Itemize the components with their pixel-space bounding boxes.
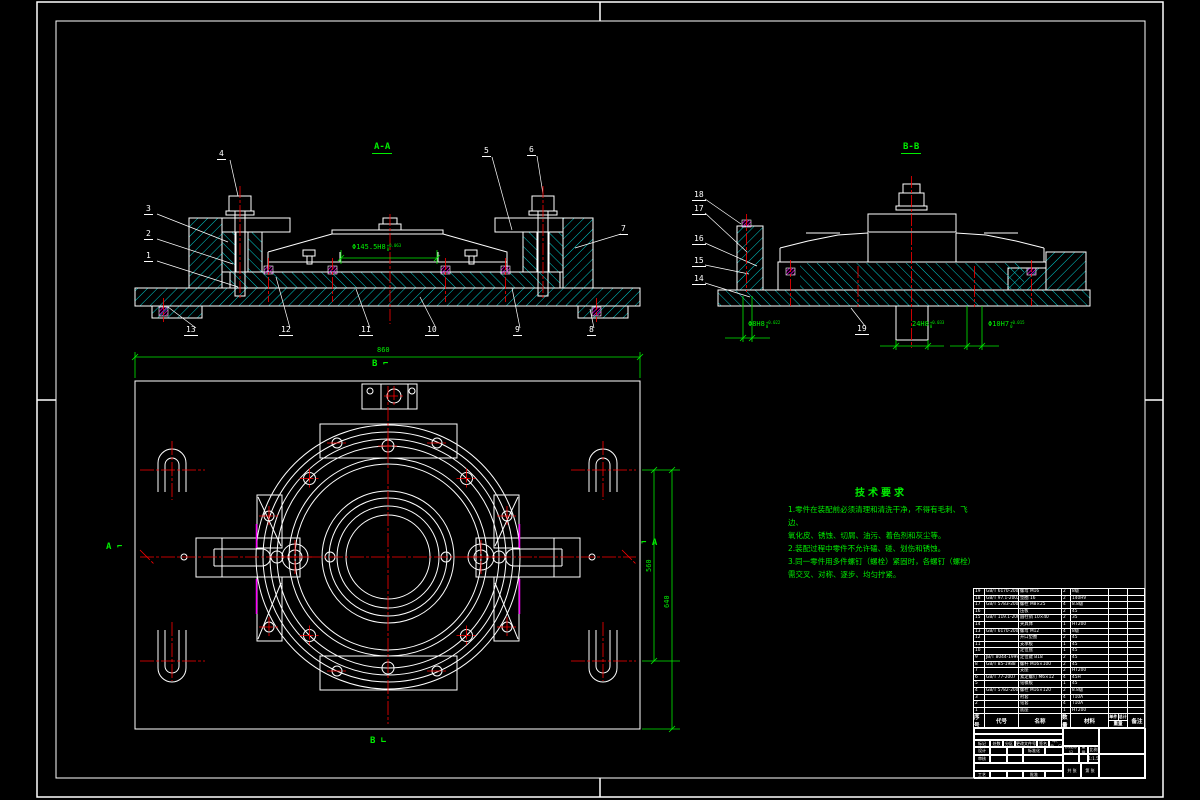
bom-cell-note (1128, 662, 1146, 668)
bom-cell-qty: 2 (1062, 589, 1071, 595)
bom-cell-qty: 2 (1062, 609, 1071, 615)
bom-cell-qty: 1 (1062, 642, 1071, 648)
bom-cell-material: 45H (1071, 675, 1109, 681)
bom-cell-name: 压板 (1019, 609, 1062, 615)
bom-cell-code (985, 668, 1019, 674)
bom-cell-note (1128, 596, 1146, 602)
bom-rows: 19 GB/T 6170-2000 螺母 M16 2 8级 18 GB/T 97… (974, 589, 1144, 714)
bom-cell-name: 底座 (1019, 708, 1062, 714)
bom-cell-code (985, 681, 1019, 687)
tb-scale-value: 1:1.5 (1088, 754, 1099, 763)
bom-cell-code: GB/T 77-2007 (985, 675, 1019, 681)
dim-tolerance: +0.0220 (766, 321, 780, 329)
balloon-10: 10 (425, 326, 439, 336)
bom-cell-name: 螺栓 M16×120 (1019, 688, 1062, 694)
dim-tolerance: +0.0630 (387, 244, 401, 252)
bom-cell-code: GB/T 5783-2000 (985, 602, 1019, 608)
bom-cell-name: 紧定螺钉 M6×12 (1019, 675, 1062, 681)
dim-bore-aa: Φ145.5H8+0.0630 (352, 244, 401, 252)
bom-cell-code: GB/T 6170-2000 (985, 629, 1019, 635)
balloon-17: 17 (692, 205, 706, 215)
bom-table: 19 GB/T 6170-2000 螺母 M16 2 8级 18 GB/T 97… (973, 588, 1145, 728)
bom-cell-qty: 1 (1062, 681, 1071, 687)
bom-row: 3 衬套 4 T10A (974, 695, 1144, 702)
bom-cell-weight (1109, 629, 1128, 635)
tb-sign: 签名 (1037, 740, 1049, 747)
dim-bb-3: Φ10H7+0.0150 (988, 321, 1025, 329)
bom-row: 13 GB/T 6170-2000 螺母 M12 4 8级 (974, 629, 1144, 636)
dim-text: Φ145.5H8 (352, 244, 386, 251)
tb-design: 设计 (974, 747, 990, 755)
dim-plan-width: 860 (377, 347, 390, 354)
bom-cell-no: 18 (974, 596, 985, 602)
bom-cell-note (1128, 589, 1146, 595)
bom-cell-code: GB/T 97.1-2002 (985, 596, 1019, 602)
bom-cell-name: 螺栓 M8×25 (1019, 602, 1062, 608)
bom-cell-note (1128, 642, 1146, 648)
bom-row: 5 钻模板 1 45 (974, 681, 1144, 688)
bom-cell-code (985, 701, 1019, 707)
bom-header: 序号 代号 名称 数量 材料 单件总计 重量 备注 (974, 714, 1144, 728)
bom-cell-qty: 1 (1062, 708, 1071, 714)
bom-cell-qty: 2 (1062, 662, 1071, 668)
balloon-16: 16 (692, 235, 706, 245)
bom-cell-material: 45 (1071, 662, 1109, 668)
bom-cell-note (1128, 609, 1146, 615)
bom-cell-qty: 2 (1062, 655, 1071, 661)
bom-cell-code: GB/T 6170-2000 (985, 589, 1019, 595)
note-line: 2.装配过程中零件不允许磕、碰、划伤和锈蚀。 (788, 542, 974, 555)
bom-cell-no: 5 (974, 681, 985, 687)
bom-row: 10 定位盘 1 45 (974, 648, 1144, 655)
bom-cell-name: 螺母 M16 (1019, 589, 1062, 595)
bom-row: 2 钻套 4 T10A (974, 701, 1144, 708)
bom-cell-code (985, 609, 1019, 615)
bom-cell-no: 10 (974, 648, 985, 654)
bom-cell-material: 140HV (1071, 596, 1109, 602)
balloon-19: 19 (855, 325, 869, 335)
bom-cell-name: 螺杆 M16×100 (1019, 662, 1062, 668)
bom-cell-weight (1109, 675, 1128, 681)
bom-row: 1 底座 1 HT200 (974, 708, 1144, 715)
tb-drawing-number-cell (1099, 728, 1146, 754)
tb-doc: 更改文件号 (1015, 740, 1037, 747)
bom-cell-no: 13 (974, 629, 985, 635)
bom-row: 16 压板 2 45 (974, 609, 1144, 616)
bom-cell-name: 螺母 M12 (1019, 629, 1062, 635)
bom-cell-code: JB/T 8044-1999 (985, 655, 1019, 661)
balloon-4: 4 (217, 150, 226, 160)
bom-cell-note (1128, 688, 1146, 694)
bom-header-note: 备注 (1128, 714, 1146, 727)
bom-cell-material: 35 (1071, 615, 1109, 621)
bom-cell-name: 开口垫圈 (1019, 635, 1062, 641)
bom-cell-no: 1 (974, 708, 985, 714)
bom-row: 8 GB/T 85-1988 螺杆 M16×100 2 45 (974, 662, 1144, 669)
bom-cell-no: 7 (974, 668, 985, 674)
bom-cell-material: T10A (1071, 701, 1109, 707)
dim-bb-1: Φ8H8+0.0220 (748, 321, 780, 329)
bom-cell-code (985, 635, 1019, 641)
bom-cell-no: 9 (974, 655, 985, 661)
bom-cell-note (1128, 708, 1146, 714)
bom-cell-name: 支座 (1019, 668, 1062, 674)
bom-cell-material: 45 (1071, 648, 1109, 654)
tb-sheets: 共 张 (1063, 763, 1081, 779)
bom-cell-code: GB/T 85-1988 (985, 662, 1019, 668)
bom-row: 15 GB/T 119.1-2000 圆柱销 10×40 2 35 (974, 615, 1144, 622)
bom-cell-no: 15 (974, 615, 985, 621)
bom-cell-name: 衬套 (1019, 695, 1062, 701)
bom-cell-no: 14 (974, 622, 985, 628)
dim-bb-2: 24H8+0.0330 (912, 321, 944, 329)
bom-cell-code (985, 695, 1019, 701)
bom-cell-material: 45 (1071, 642, 1109, 648)
balloon-15: 15 (692, 257, 706, 267)
bom-cell-note (1128, 602, 1146, 608)
tb-count: 处数 (990, 740, 1003, 747)
bom-cell-qty: 4 (1062, 701, 1071, 707)
bom-cell-material: 8.8级 (1071, 602, 1109, 608)
bom-cell-weight (1109, 681, 1128, 687)
bom-row: 18 GB/T 97.1-2002 垫圈 16 2 140HV (974, 596, 1144, 603)
note-line: 氧化皮、锈蚀、切屑、油污、着色剂和灰尘等。 (788, 529, 974, 542)
section-aa-view (135, 156, 640, 328)
tb-stage: 阶段标记 (1063, 746, 1079, 754)
bom-cell-material: HT200 (1071, 668, 1109, 674)
bom-cell-weight (1109, 655, 1128, 661)
bom-cell-code (985, 708, 1019, 714)
balloon-2: 2 (144, 230, 153, 240)
balloon-8: 8 (587, 326, 596, 336)
bom-cell-note (1128, 668, 1146, 674)
plan-view (135, 381, 640, 729)
balloon-9: 9 (513, 326, 522, 336)
bom-header-code: 代号 (985, 714, 1019, 727)
bom-cell-weight (1109, 609, 1128, 615)
dim-plan-height-inner: 560 (646, 559, 653, 572)
bom-cell-material: 45 (1071, 655, 1109, 661)
bom-cell-note (1128, 622, 1146, 628)
bom-cell-name: 钻模板 (1019, 681, 1062, 687)
balloon-1: 1 (144, 252, 153, 262)
bom-row: 14 夹具体 1 HT200 (974, 622, 1144, 629)
bom-cell-qty: 2 (1062, 635, 1071, 641)
bom-cell-qty: 1 (1062, 622, 1071, 628)
bom-cell-material: HT200 (1071, 622, 1109, 628)
title-block: 标记 处数 分区 更改文件号 签名 年、月、日 设计 标准化 审核 工艺 批准 … (973, 727, 1145, 778)
tb-mark: 标记 (974, 740, 990, 747)
bom-cell-note (1128, 648, 1146, 654)
bom-cell-weight (1109, 589, 1128, 595)
bom-cell-qty: 4 (1062, 695, 1071, 701)
bom-cell-qty: 4 (1062, 602, 1071, 608)
bom-cell-no: 11 (974, 642, 985, 648)
bom-cell-name: 定位盘 (1019, 648, 1062, 654)
bom-cell-note (1128, 635, 1146, 641)
bom-cell-weight (1109, 668, 1128, 674)
bom-header-weight: 单件总计 重量 (1109, 714, 1128, 727)
bom-row: 19 GB/T 6170-2000 螺母 M16 2 8级 (974, 589, 1144, 596)
dim-text: 24H8 (912, 321, 929, 328)
bom-cell-no: 19 (974, 589, 985, 595)
bom-cell-name: 夹具体 (1019, 622, 1062, 628)
bom-cell-code: GB/T 5782-2000 (985, 688, 1019, 694)
bom-cell-weight (1109, 596, 1128, 602)
bom-cell-material: T10A (1071, 695, 1109, 701)
note-line: 需交叉、对称、逐步、均匀拧紧。 (788, 568, 974, 581)
bom-cell-weight (1109, 695, 1128, 701)
balloon-3: 3 (144, 205, 153, 215)
bom-cell-weight (1109, 642, 1128, 648)
bom-cell-code: GB/T 119.1-2000 (985, 615, 1019, 621)
bom-cell-name: 垫圈 16 (1019, 596, 1062, 602)
bom-cell-no: 6 (974, 675, 985, 681)
bom-cell-name: 支承板 (1019, 642, 1062, 648)
tb-standard: 标准化 (1023, 747, 1045, 755)
section-bb-label: B-B (901, 143, 921, 154)
bom-cell-material: 8.8级 (1071, 688, 1109, 694)
section-aa-label: A-A (372, 143, 392, 154)
section-bb-view (705, 184, 1090, 340)
bom-row: 11 支承板 1 45 (974, 642, 1144, 649)
bom-cell-qty: 1 (1062, 648, 1071, 654)
balloon-12: 12 (279, 326, 293, 336)
section-marker-b-bottom: B ∟ (370, 737, 386, 746)
technical-requirements-title: 技术要求 (788, 484, 974, 499)
balloon-13: 13 (184, 326, 198, 336)
bom-header-qty: 数量 (1062, 714, 1071, 727)
tb-process: 工艺 (974, 771, 990, 779)
bom-row: 6 GB/T 77-2007 紧定螺钉 M6×12 4 45H (974, 675, 1144, 682)
bom-cell-material: 45 (1071, 635, 1109, 641)
dim-text: Φ8H8 (748, 321, 765, 328)
bom-header-no: 序号 (974, 714, 985, 727)
tb-drawing-name-cell (1099, 754, 1146, 779)
tb-check: 审核 (974, 755, 990, 763)
tb-date: 年、月、日 (1049, 740, 1063, 747)
bom-cell-weight (1109, 662, 1128, 668)
bom-cell-note (1128, 701, 1146, 707)
dim-tolerance: +0.0330 (930, 321, 944, 329)
note-line: 3.同一零件用多件螺钉（螺栓）紧固时，各螺钉（螺栓） (788, 555, 974, 568)
balloon-6: 6 (527, 146, 536, 156)
bom-cell-note (1128, 629, 1146, 635)
tb-zone: 分区 (1003, 740, 1015, 747)
bom-cell-no: 16 (974, 609, 985, 615)
bom-cell-qty: 2 (1062, 615, 1071, 621)
bom-cell-no: 3 (974, 695, 985, 701)
bom-cell-note (1128, 675, 1146, 681)
bom-cell-note (1128, 681, 1146, 687)
balloon-14: 14 (692, 275, 706, 285)
tb-scale: 比例 (1088, 746, 1099, 754)
bom-cell-code (985, 622, 1019, 628)
bom-row: 9 JB/T 8044-1999 定位键 B18 2 45 (974, 655, 1144, 662)
tb-weight: 重量 (1079, 746, 1088, 754)
bom-cell-name: 钻套 (1019, 701, 1062, 707)
balloon-7: 7 (619, 225, 628, 235)
bom-cell-material: 8级 (1071, 629, 1109, 635)
bom-header-material: 材料 (1071, 714, 1109, 727)
bom-row: 4 GB/T 5782-2000 螺栓 M16×120 2 8.8级 (974, 688, 1144, 695)
drawing-canvas: A-A B-B 4 5 6 3 2 1 7 13 12 11 10 9 8 18… (0, 0, 1200, 800)
bom-cell-no: 17 (974, 602, 985, 608)
bom-row: 12 开口垫圈 2 45 (974, 635, 1144, 642)
balloon-11: 11 (359, 326, 373, 336)
bom-cell-qty: 2 (1062, 668, 1071, 674)
balloon-5: 5 (482, 147, 491, 157)
dim-plan-height-outer: 640 (664, 595, 671, 608)
bom-cell-qty: 4 (1062, 675, 1071, 681)
bom-cell-weight (1109, 701, 1128, 707)
bom-cell-weight (1109, 635, 1128, 641)
bom-cell-note (1128, 695, 1146, 701)
bom-cell-no: 12 (974, 635, 985, 641)
bom-cell-note (1128, 655, 1146, 661)
bom-row: 17 GB/T 5783-2000 螺栓 M8×25 4 8.8级 (974, 602, 1144, 609)
bom-cell-note (1128, 615, 1146, 621)
section-marker-b-top: B ⌐ (372, 360, 388, 369)
bom-cell-material: 8级 (1071, 589, 1109, 595)
bom-cell-weight (1109, 648, 1128, 654)
bom-cell-name: 定位键 B18 (1019, 655, 1062, 661)
bom-cell-weight (1109, 688, 1128, 694)
bom-cell-name: 圆柱销 10×40 (1019, 615, 1062, 621)
tb-approve: 批准 (1023, 771, 1045, 779)
technical-requirements: 技术要求 1.零件在装配前必须清理和清洗干净，不得有毛刺、飞边、 氧化皮、锈蚀、… (788, 484, 974, 581)
bom-cell-qty: 4 (1062, 629, 1071, 635)
bom-cell-no: 2 (974, 701, 985, 707)
bom-row: 7 支座 2 HT200 (974, 668, 1144, 675)
bom-cell-code (985, 642, 1019, 648)
bom-cell-qty: 2 (1062, 688, 1071, 694)
note-line: 1.零件在装配前必须清理和清洗干净，不得有毛刺、飞边、 (788, 503, 974, 529)
bom-cell-weight (1109, 602, 1128, 608)
bom-cell-weight (1109, 622, 1128, 628)
bom-header-name: 名称 (1019, 714, 1062, 727)
dim-text: Φ10H7 (988, 321, 1009, 328)
bom-cell-code (985, 648, 1019, 654)
tb-page: 第 张 (1081, 763, 1099, 779)
bom-cell-material: 45 (1071, 609, 1109, 615)
bom-cell-weight (1109, 708, 1128, 714)
dim-tolerance: +0.0150 (1010, 321, 1024, 329)
bom-cell-weight (1109, 615, 1128, 621)
bom-cell-material: HT200 (1071, 708, 1109, 714)
bom-cell-no: 8 (974, 662, 985, 668)
section-marker-a-right: ⌐ A (641, 539, 657, 548)
section-marker-a-left: A ⌐ (106, 543, 122, 552)
bom-cell-material: 45 (1071, 681, 1109, 687)
balloon-18: 18 (692, 191, 706, 201)
bom-cell-no: 4 (974, 688, 985, 694)
bom-cell-qty: 2 (1062, 596, 1071, 602)
bom-header-weight-label: 重量 (1114, 721, 1123, 727)
